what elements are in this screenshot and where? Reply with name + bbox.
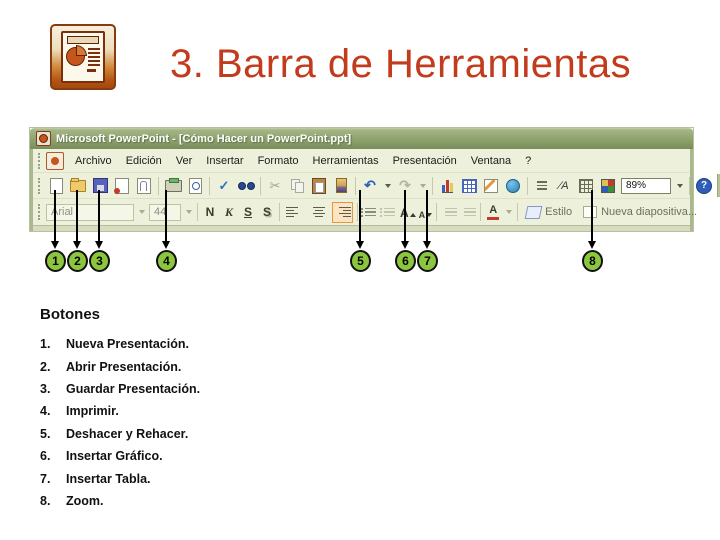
callout-line-7 (426, 190, 428, 241)
separator (355, 177, 356, 195)
menu-ventana[interactable]: Ventana (464, 152, 518, 170)
separator (357, 203, 358, 221)
menu-herramientas[interactable]: Herramientas (306, 152, 386, 170)
italic-button[interactable]: K (221, 203, 237, 221)
callout-line-1 (54, 190, 56, 241)
list-item: 4.Imprimir. (40, 400, 200, 422)
toolbar-grip[interactable] (38, 178, 40, 194)
separator (432, 177, 433, 195)
shadow-button[interactable]: S (259, 203, 275, 221)
callout-badge-4: 4 (156, 250, 177, 272)
legend-heading: Botones (40, 306, 100, 323)
list-item: 3.Guardar Presentación. (40, 378, 200, 400)
logo-text-lines (88, 47, 100, 67)
numbering-icon[interactable] (362, 208, 378, 217)
callout-arrow-4 (162, 241, 170, 249)
bold-button[interactable]: N (202, 203, 218, 221)
list-item: 7.Insertar Tabla. (40, 467, 200, 489)
underline-button[interactable]: S (240, 203, 256, 221)
open-presentation-icon[interactable] (69, 177, 87, 195)
separator (689, 177, 690, 195)
zoom-combobox[interactable]: 89% (621, 178, 671, 194)
separator (209, 177, 210, 195)
menu-ayuda[interactable]: ? (518, 152, 538, 170)
new-presentation-icon[interactable] (47, 177, 65, 195)
new-slide-button[interactable]: Nueva diapositiva... (579, 206, 701, 218)
font-size-dropdown-icon[interactable] (184, 203, 193, 221)
menu-presentacion[interactable]: Presentación (386, 152, 464, 170)
color-schemes-icon[interactable] (599, 177, 617, 195)
separator (480, 203, 481, 221)
powerpoint-window-screenshot: Microsoft PowerPoint - [Cómo Hacer un Po… (30, 128, 693, 231)
callout-badge-2: 2 (67, 250, 88, 272)
insert-table-icon[interactable] (460, 177, 478, 195)
callout-badge-6: 6 (395, 250, 416, 272)
separator (517, 203, 518, 221)
attachment-icon[interactable] (135, 177, 153, 195)
list-item: 6.Insertar Gráfico. (40, 445, 200, 467)
align-right-icon[interactable] (332, 202, 353, 223)
callout-arrow-1 (51, 241, 59, 249)
logo-title-bar (67, 36, 99, 44)
callout-line-3 (98, 190, 100, 241)
save-icon[interactable] (91, 177, 109, 195)
toolbar-grip[interactable] (38, 153, 43, 169)
list-item: 1.Nueva Presentación. (40, 333, 200, 355)
font-color-icon[interactable]: A (485, 205, 501, 220)
separator (158, 177, 159, 195)
callout-arrow-5 (356, 241, 364, 249)
font-name-dropdown-icon[interactable] (137, 203, 146, 221)
toolbar-grip[interactable] (38, 204, 40, 220)
print-preview-icon[interactable] (186, 177, 204, 195)
show-formatting-icon[interactable]: ∕A (555, 177, 573, 195)
callout-arrow-6 (401, 241, 409, 249)
callout-badge-8: 8 (582, 250, 603, 272)
powerpoint-app-icon (36, 131, 51, 146)
decrease-indent-icon[interactable] (441, 208, 457, 217)
copy-icon[interactable] (288, 177, 306, 195)
separator (197, 203, 198, 221)
menu-formato[interactable]: Formato (251, 152, 306, 170)
increase-indent-icon[interactable] (460, 208, 476, 217)
format-painter-icon[interactable] (332, 177, 350, 195)
tables-and-borders-icon[interactable] (482, 177, 500, 195)
page-title: 3. Barra de Herramientas (170, 42, 710, 87)
callout-line-4 (165, 190, 167, 241)
callout-arrow-3 (95, 241, 103, 249)
email-icon[interactable] (113, 177, 131, 195)
font-color-dropdown-icon[interactable] (504, 203, 513, 221)
logo-footer-line (87, 69, 96, 72)
powerpoint-icon (46, 152, 64, 170)
callout-line-8 (591, 190, 593, 241)
list-item: 2.Abrir Presentación. (40, 355, 200, 377)
window-title-bar: Microsoft PowerPoint - [Cómo Hacer un Po… (30, 128, 693, 149)
insert-chart-icon[interactable] (438, 177, 456, 195)
list-item: 5.Deshacer y Rehacer. (40, 423, 200, 445)
spelling-icon[interactable]: ✓ (215, 177, 233, 195)
separator (436, 203, 437, 221)
callout-arrow-8 (588, 241, 596, 249)
slide-design-button[interactable]: Estilo (522, 206, 576, 219)
callout-badge-1: 1 (45, 250, 66, 272)
callout-arrow-7 (423, 241, 431, 249)
expand-all-icon[interactable] (533, 177, 551, 195)
callout-arrow-2 (73, 241, 81, 249)
separator (260, 177, 261, 195)
menu-bar: Archivo Edición Ver Insertar Formato Her… (33, 149, 690, 172)
window-title: Microsoft PowerPoint - [Cómo Hacer un Po… (56, 133, 351, 145)
callout-line-6 (404, 190, 406, 241)
separator (279, 203, 280, 221)
increase-font-size-icon[interactable]: A (400, 202, 416, 222)
callout-badge-7: 7 (417, 250, 438, 272)
legend-list: 1.Nueva Presentación. 2.Abrir Presentaci… (40, 333, 200, 512)
align-left-icon[interactable] (284, 202, 305, 223)
zoom-dropdown-icon[interactable] (675, 177, 684, 195)
pie-chart-icon (66, 47, 85, 66)
undo-dropdown-icon[interactable] (383, 177, 392, 195)
insert-hyperlink-icon[interactable] (504, 177, 522, 195)
font-name-combobox[interactable]: Arial (46, 204, 134, 221)
cut-icon[interactable]: ✂ (266, 177, 284, 195)
help-icon[interactable]: ? (695, 177, 713, 195)
menu-ver[interactable]: Ver (169, 152, 200, 170)
bullets-icon[interactable] (381, 208, 397, 217)
paste-icon[interactable] (310, 177, 328, 195)
undo-icon[interactable]: ↶ (361, 177, 379, 195)
callout-line-5 (359, 190, 361, 241)
menu-insertar[interactable]: Insertar (199, 152, 250, 170)
callout-line-2 (76, 190, 78, 241)
menu-edicion[interactable]: Edición (119, 152, 169, 170)
separator (527, 177, 528, 195)
find-icon[interactable] (237, 177, 255, 195)
logo-document (61, 31, 105, 83)
list-item: 8.Zoom. (40, 490, 200, 512)
powerpoint-logo-icon (50, 24, 116, 90)
callout-badge-3: 3 (89, 250, 110, 272)
callout-badge-5: 5 (350, 250, 371, 272)
menu-archivo[interactable]: Archivo (68, 152, 119, 170)
align-center-icon[interactable] (308, 202, 329, 223)
design-icon (525, 206, 543, 219)
